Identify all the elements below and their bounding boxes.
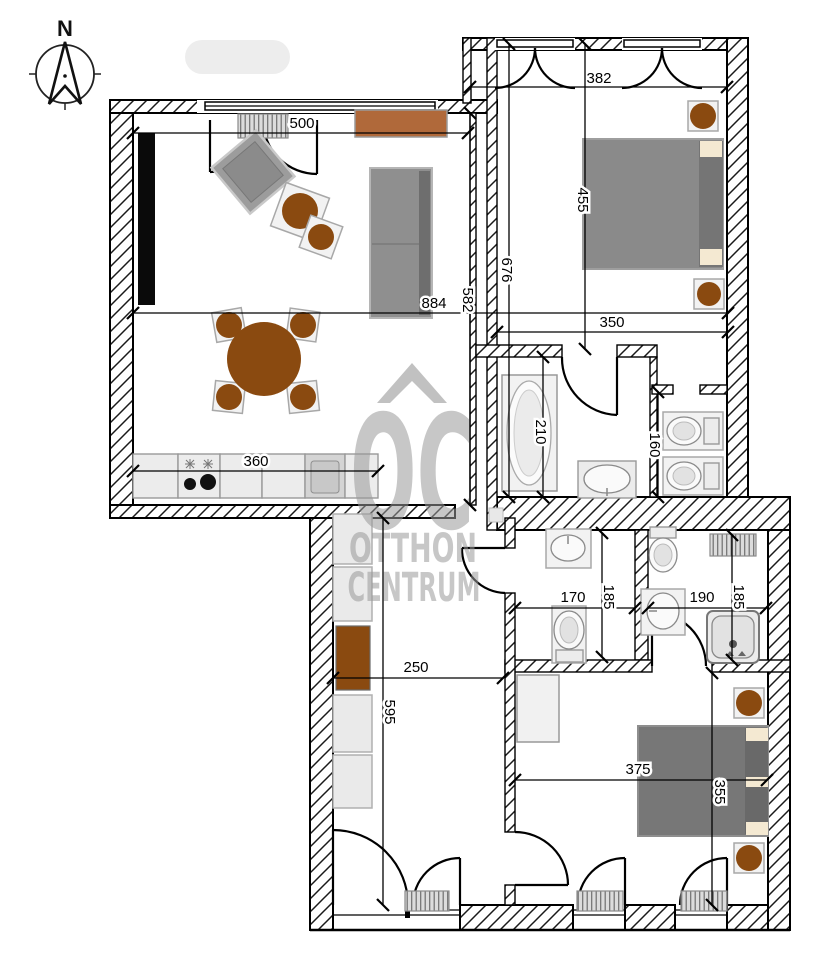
toilet [663,412,723,450]
dim-hall-width: 250 [403,659,428,676]
dim-bathroom-depth: 210 [532,419,549,444]
dim-wc2-width: 170 [560,589,585,606]
wall-right-lower [768,530,790,930]
hall-shelf [489,508,503,522]
nightstand [688,101,718,131]
watermark-line2: CENTRUM [348,565,481,611]
wall-wc-top-a [652,385,673,394]
hall-cabinet [333,755,372,808]
washbasin [578,461,636,498]
dining-set [212,308,320,414]
burner [184,478,196,490]
dim-bedroom1-inner: 350 [599,314,624,331]
dim-bedroom2-depth: 355 [711,779,728,804]
wall-bedroom1-left [487,38,497,530]
living-radiator [238,114,288,138]
bathroom-door-arc [562,357,617,415]
dim-bedroom2-width: 375 [625,761,650,778]
bedroom1-furniture [583,101,724,309]
dining-table [227,322,301,396]
wall-hall-right-a [505,518,515,548]
dim-bedroom1-depth: 455 [574,187,591,212]
compass-rose: N [29,16,101,110]
nightstand [734,843,764,873]
washbasin [641,589,685,635]
dim-shower-depth: 185 [730,584,747,609]
shower-room-radiator [710,534,756,556]
wall-hall-right-c [505,885,515,905]
dim-wc2-depth: 185 [600,584,617,609]
bed-double [638,726,768,836]
wall-living-left [110,100,133,518]
bed-double [583,139,723,269]
dim-living-window: 500 [289,115,314,132]
wall-bottom-3 [727,905,768,930]
dim-wc-depth: 160 [646,432,663,457]
bedroom1-window-2 [624,40,700,47]
nightstand [694,279,724,309]
stove [178,454,220,498]
toilet [552,606,586,663]
compass-north-label: N [57,16,73,41]
smudge-watermark [185,40,290,74]
floor-plan-page: N [0,0,828,962]
dim-hall-depth: 595 [381,699,398,724]
toilet [649,527,677,572]
wall-bath-top-b [617,345,657,357]
wall-hall-right-b [505,593,515,832]
wall-shaft [463,38,471,103]
wall-wc-top-b [700,385,727,394]
wall-bath-top-a [476,345,562,357]
dim-wing-depth: 676 [498,257,515,282]
dim-living-width: 884 [421,295,446,312]
wall-bottom-1 [460,905,573,930]
wall-hall-left [310,518,333,930]
tv-cabinet [138,133,155,305]
burner [200,474,216,490]
washbasin [546,529,591,568]
dim-bedroom1-width: 382 [586,70,611,87]
wall-bottom-2 [625,905,675,930]
shower-tray [707,611,759,663]
wardrobe [517,675,559,742]
radiator [577,891,623,911]
wall-right-upper [727,38,748,500]
radiator [681,891,727,911]
otthon-centrum-watermark: OC OTTHON CENTRUM [348,363,481,611]
toilet [663,457,723,495]
dim-living-depth: 582 [459,287,476,312]
dining-chair [287,381,320,414]
dim-shower-width: 190 [689,589,714,606]
bedroom2-door-arc [515,832,568,885]
north-needle-icon [49,42,81,104]
floor-plan-svg: N [0,0,828,962]
wall-mid-band [497,497,790,530]
hall-cabinet-brown [336,626,370,690]
wc-room-fixtures [663,412,723,495]
nightstand [734,688,764,718]
wall-bath-right [650,357,657,497]
hall-cabinet [333,695,372,752]
dim-kitchen-run: 360 [243,453,268,470]
radiator [405,891,449,911]
entry-door-arc [333,830,408,905]
